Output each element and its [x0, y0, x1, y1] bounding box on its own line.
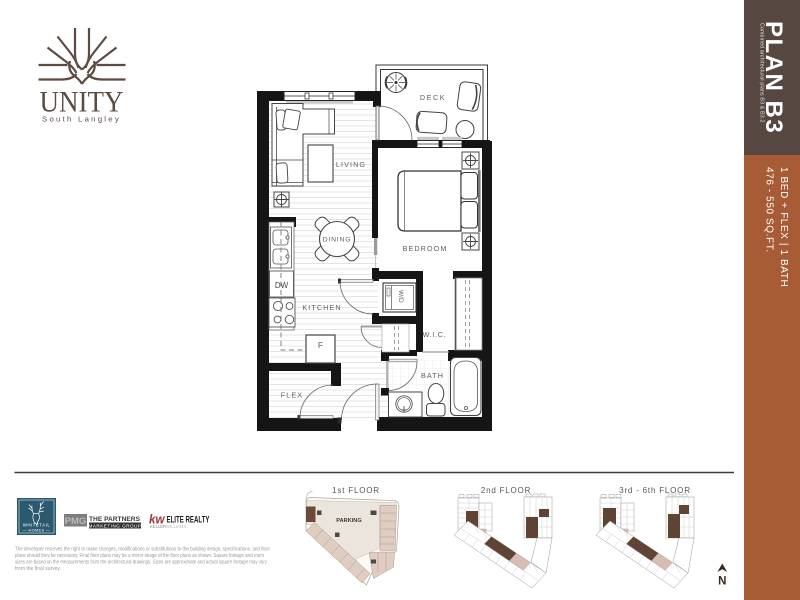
svg-text:KELLERWILLIAMS: KELLERWILLIAMS	[150, 524, 186, 529]
svg-text:DECK: DECK	[420, 93, 446, 102]
svg-text:plans should they be necessary: plans should they be necessary. Final fl…	[15, 553, 264, 559]
svg-text:2nd FLOOR: 2nd FLOOR	[481, 486, 531, 495]
svg-text:BATH: BATH	[421, 371, 444, 380]
svg-text:KITCHEN: KITCHEN	[302, 303, 341, 312]
svg-text:W/D: W/D	[397, 290, 404, 303]
svg-text:The developer reserves the rig: The developer reserves the right to make…	[15, 547, 270, 553]
svg-text:W.I.C.: W.I.C.	[423, 330, 447, 339]
svg-text:1 BED + FLEX | 1 BATH: 1 BED + FLEX | 1 BATH	[778, 167, 789, 287]
svg-text:THE PARTNERS: THE PARTNERS	[89, 516, 140, 523]
svg-text:South Langley: South Langley	[42, 117, 121, 124]
svg-text:PMG: PMG	[65, 516, 87, 527]
svg-text:sizes are based on the measure: sizes are based on the measurements from…	[15, 560, 267, 566]
svg-text:F: F	[318, 340, 323, 350]
svg-text:BEDROOM: BEDROOM	[403, 244, 448, 253]
svg-text:LIVING: LIVING	[336, 160, 366, 169]
svg-text:from the final survey.: from the final survey.	[15, 566, 61, 572]
svg-text:Combined architectural plans B: Combined architectural plans B3 & B3.2	[759, 23, 765, 123]
svg-text:MARKETING GROUP: MARKETING GROUP	[89, 523, 142, 528]
svg-text:FLEX: FLEX	[281, 391, 303, 400]
svg-text:3rd - 6th FLOOR: 3rd - 6th FLOOR	[619, 486, 691, 495]
svg-text:1st FLOOR: 1st FLOOR	[332, 486, 380, 495]
svg-text:PARKING: PARKING	[336, 518, 361, 524]
svg-text:476 - 550 SQ.FT.: 476 - 550 SQ.FT.	[764, 167, 775, 253]
svg-text:WHITETAIL: WHITETAIL	[23, 523, 51, 528]
svg-text:N: N	[718, 576, 726, 588]
svg-text:DW: DW	[275, 281, 289, 290]
svg-text:— HOMES —: — HOMES —	[23, 529, 50, 533]
svg-text:UNITY: UNITY	[40, 86, 124, 119]
svg-text:DINING: DINING	[323, 237, 352, 244]
